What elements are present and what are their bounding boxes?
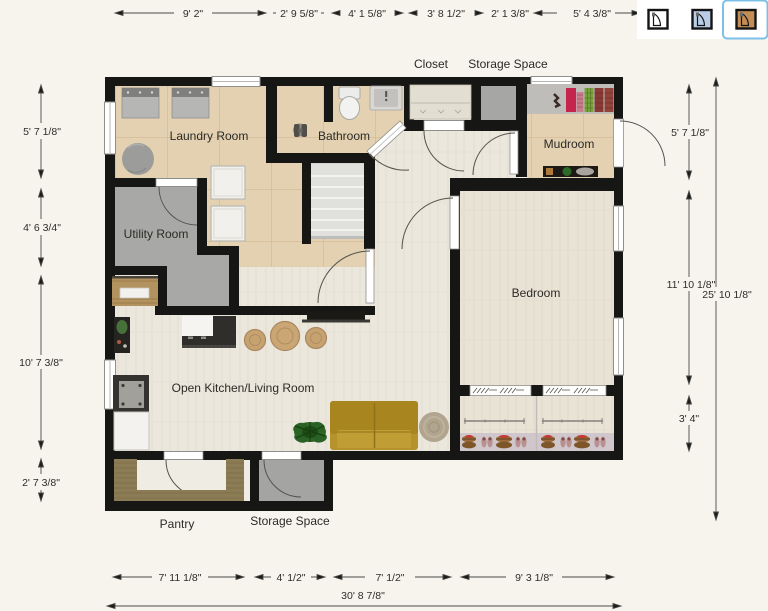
svg-text:9' 3 1/8": 9' 3 1/8" — [515, 572, 553, 584]
svg-text:Storage Space: Storage Space — [250, 514, 330, 528]
svg-text:4' 1/2": 4' 1/2" — [276, 572, 305, 584]
svg-text:Pantry: Pantry — [160, 517, 195, 531]
svg-text:4' 1 5/8": 4' 1 5/8" — [348, 8, 386, 20]
svg-text:Bedroom: Bedroom — [512, 286, 561, 300]
svg-text:9' 2": 9' 2" — [183, 8, 204, 20]
svg-text:Bathroom: Bathroom — [318, 129, 370, 143]
svg-text:25' 10 1/8": 25' 10 1/8" — [702, 289, 752, 301]
svg-text:30' 8 7/8": 30' 8 7/8" — [341, 590, 385, 602]
svg-text:Open Kitchen/Living Room: Open Kitchen/Living Room — [172, 381, 315, 395]
svg-text:5' 7 1/8": 5' 7 1/8" — [23, 126, 61, 138]
svg-text:2' 7 3/8": 2' 7 3/8" — [22, 477, 60, 489]
svg-text:4' 6 3/4": 4' 6 3/4" — [23, 222, 61, 234]
svg-text:Mudroom: Mudroom — [544, 137, 595, 151]
svg-text:2' 9 5/8": 2' 9 5/8" — [280, 8, 318, 20]
svg-text:7' 11 1/8": 7' 11 1/8" — [159, 572, 202, 584]
svg-text:3' 4": 3' 4" — [679, 413, 700, 425]
svg-text:7' 1/2": 7' 1/2" — [375, 572, 404, 584]
svg-text:5' 4 3/8": 5' 4 3/8" — [573, 8, 611, 20]
svg-text:10' 7 3/8": 10' 7 3/8" — [19, 357, 63, 369]
svg-text:2' 1 3/8": 2' 1 3/8" — [491, 8, 529, 20]
svg-text:3' 8 1/2": 3' 8 1/2" — [427, 8, 465, 20]
svg-text:Utility Room: Utility Room — [124, 227, 189, 241]
svg-text:Storage Space: Storage Space — [468, 57, 548, 71]
svg-text:Closet: Closet — [414, 57, 449, 71]
svg-text:Laundry Room: Laundry Room — [170, 129, 249, 143]
svg-text:5' 7 1/8": 5' 7 1/8" — [671, 127, 709, 139]
